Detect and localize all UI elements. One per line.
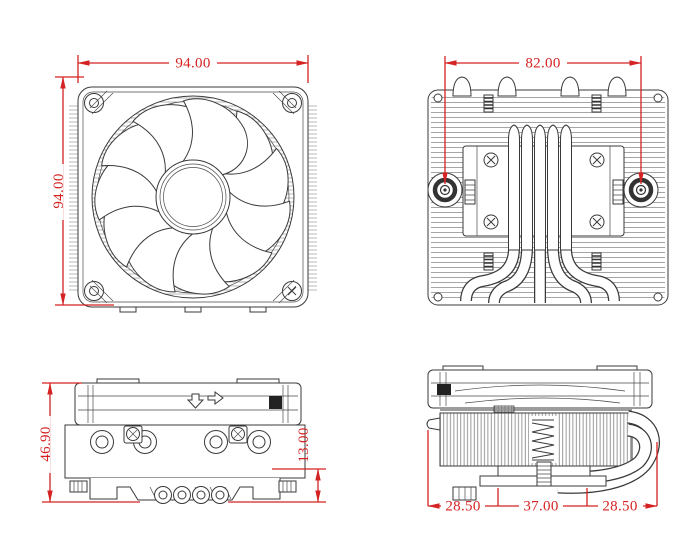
dim-label-center-width: 37.00 (523, 499, 558, 515)
heatsink-fin-edge-left (69, 104, 78, 292)
fan-hub (156, 160, 230, 234)
heatpipe-end (193, 487, 210, 504)
heatpipe (509, 125, 520, 250)
dim-label-total-height: 46.90 (38, 426, 54, 461)
fan-hub-outer (156, 160, 230, 234)
heatpipe (522, 125, 533, 250)
dim-label-hole-spacing: 82.00 (525, 56, 560, 72)
cpu-cooler-technical-drawing: 94.00 94.00 (0, 0, 700, 560)
heatpipe (561, 125, 572, 250)
fan-cable-block (269, 396, 282, 409)
heatsink-top-view: 82.00 (428, 56, 668, 306)
frame-corner-hole (654, 293, 662, 301)
fan-side-profile (75, 383, 301, 425)
heatpipe-end (174, 487, 191, 504)
frame-corner-hole (434, 94, 442, 102)
heatpipe-end (155, 487, 172, 504)
fan-corner-screw (85, 94, 104, 113)
fan-foot-tab (120, 307, 136, 312)
dim-label-right-overhang: 28.50 (602, 499, 637, 515)
heatpipe-end (91, 431, 114, 454)
dim-label-fan-width: 94.00 (175, 56, 210, 72)
heatpipe-end (205, 431, 228, 454)
retention-clip (494, 406, 514, 412)
heatpipe-nose (427, 418, 440, 430)
fan-foot-tab (185, 307, 201, 312)
heatpipe (548, 125, 559, 250)
dim-label-fan-height: 94.00 (51, 173, 67, 208)
fan-corner-screw (283, 94, 302, 113)
heatpipe-end (248, 431, 271, 454)
heatpipe (535, 125, 546, 250)
fan-foot-tab (250, 307, 266, 312)
dim-label-base-height: 13.00 (296, 427, 312, 462)
cooler-side-view: 46.90 13.00 (38, 379, 327, 504)
fan-cable-block (437, 384, 451, 395)
fan-front-view: 94.00 94.00 (51, 55, 318, 314)
frame-corner-hole (434, 293, 442, 301)
cooler-profile-view: 28.50 37.00 28.50 (427, 366, 657, 515)
heatpipe-end (212, 487, 229, 504)
heatpipe-tip (453, 77, 471, 96)
technical-drawing-canvas: 94.00 94.00 (0, 0, 700, 560)
heatsink-fin-edge-right (308, 104, 317, 292)
fan-side-profile (428, 370, 652, 408)
fan-corner-screw (85, 282, 104, 301)
heatpipe-tip (498, 77, 516, 96)
frame-corner-hole (654, 94, 662, 102)
dim-label-left-overhang: 28.50 (445, 499, 480, 515)
heatpipes-vertical (509, 125, 572, 250)
heatpipe-tip (561, 77, 579, 96)
heatpipe-tip (608, 77, 626, 96)
